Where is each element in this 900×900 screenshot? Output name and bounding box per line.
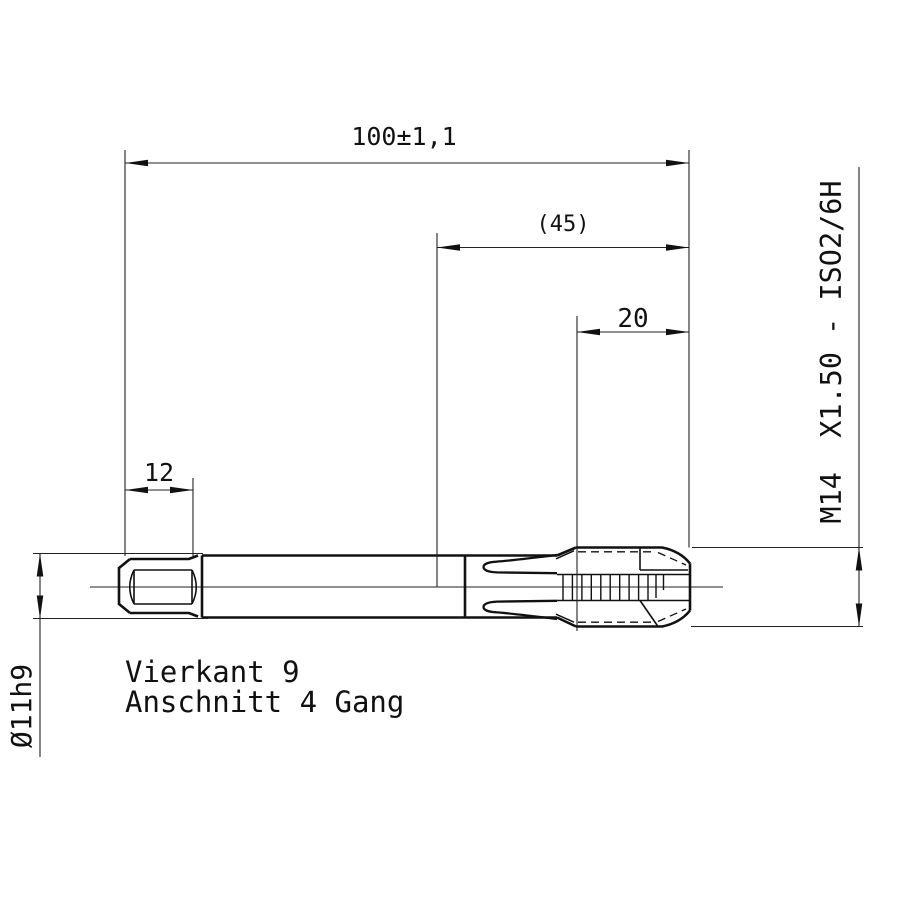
dimension-flute-length: (45): [437, 212, 689, 251]
dimension-square-length: 12: [125, 458, 193, 493]
arrow-up-icon: [856, 548, 863, 571]
arrow-right-icon: [666, 244, 689, 251]
arrow-right-icon: [666, 329, 689, 336]
arrow-down-icon: [856, 604, 863, 627]
arrow-right-icon: [666, 160, 689, 167]
drawing-notes: Vierkant 9 Anschnitt 4 Gang: [125, 655, 404, 719]
note-anschnitt: Anschnitt 4 Gang: [125, 685, 404, 719]
dimension-shank-diameter-text: Ø11h9: [5, 664, 38, 748]
drawing-canvas: 100±1,1 (45) 20 12 Ø11h9: [0, 0, 900, 900]
dimension-thread-spec-text: M14 X1.50 - ISO2/6H: [815, 180, 848, 523]
arrow-left-icon: [125, 160, 148, 167]
arrow-left-icon: [437, 244, 460, 251]
arrow-right-icon: [170, 487, 193, 494]
dimension-flute-length-text: (45): [537, 212, 590, 237]
technical-drawing: 100±1,1 (45) 20 12 Ø11h9: [0, 0, 900, 900]
tap-square-drive-end: [119, 556, 198, 617]
dimension-shank-diameter: Ø11h9: [5, 554, 43, 758]
dimension-thread-length-text: 20: [617, 304, 648, 334]
arrow-left-icon: [577, 329, 600, 336]
note-vierkant: Vierkant 9: [125, 655, 300, 689]
dimension-thread-length: 20: [577, 304, 689, 335]
dimension-square-length-text: 12: [144, 458, 174, 487]
dimension-overall-length: 100±1,1: [125, 122, 689, 166]
arrow-left-icon: [125, 487, 148, 494]
dimension-overall-length-text: 100±1,1: [351, 122, 456, 151]
arrow-up-icon: [37, 554, 44, 577]
dimension-thread-spec: M14 X1.50 - ISO2/6H: [815, 167, 862, 627]
arrow-down-icon: [37, 596, 44, 619]
